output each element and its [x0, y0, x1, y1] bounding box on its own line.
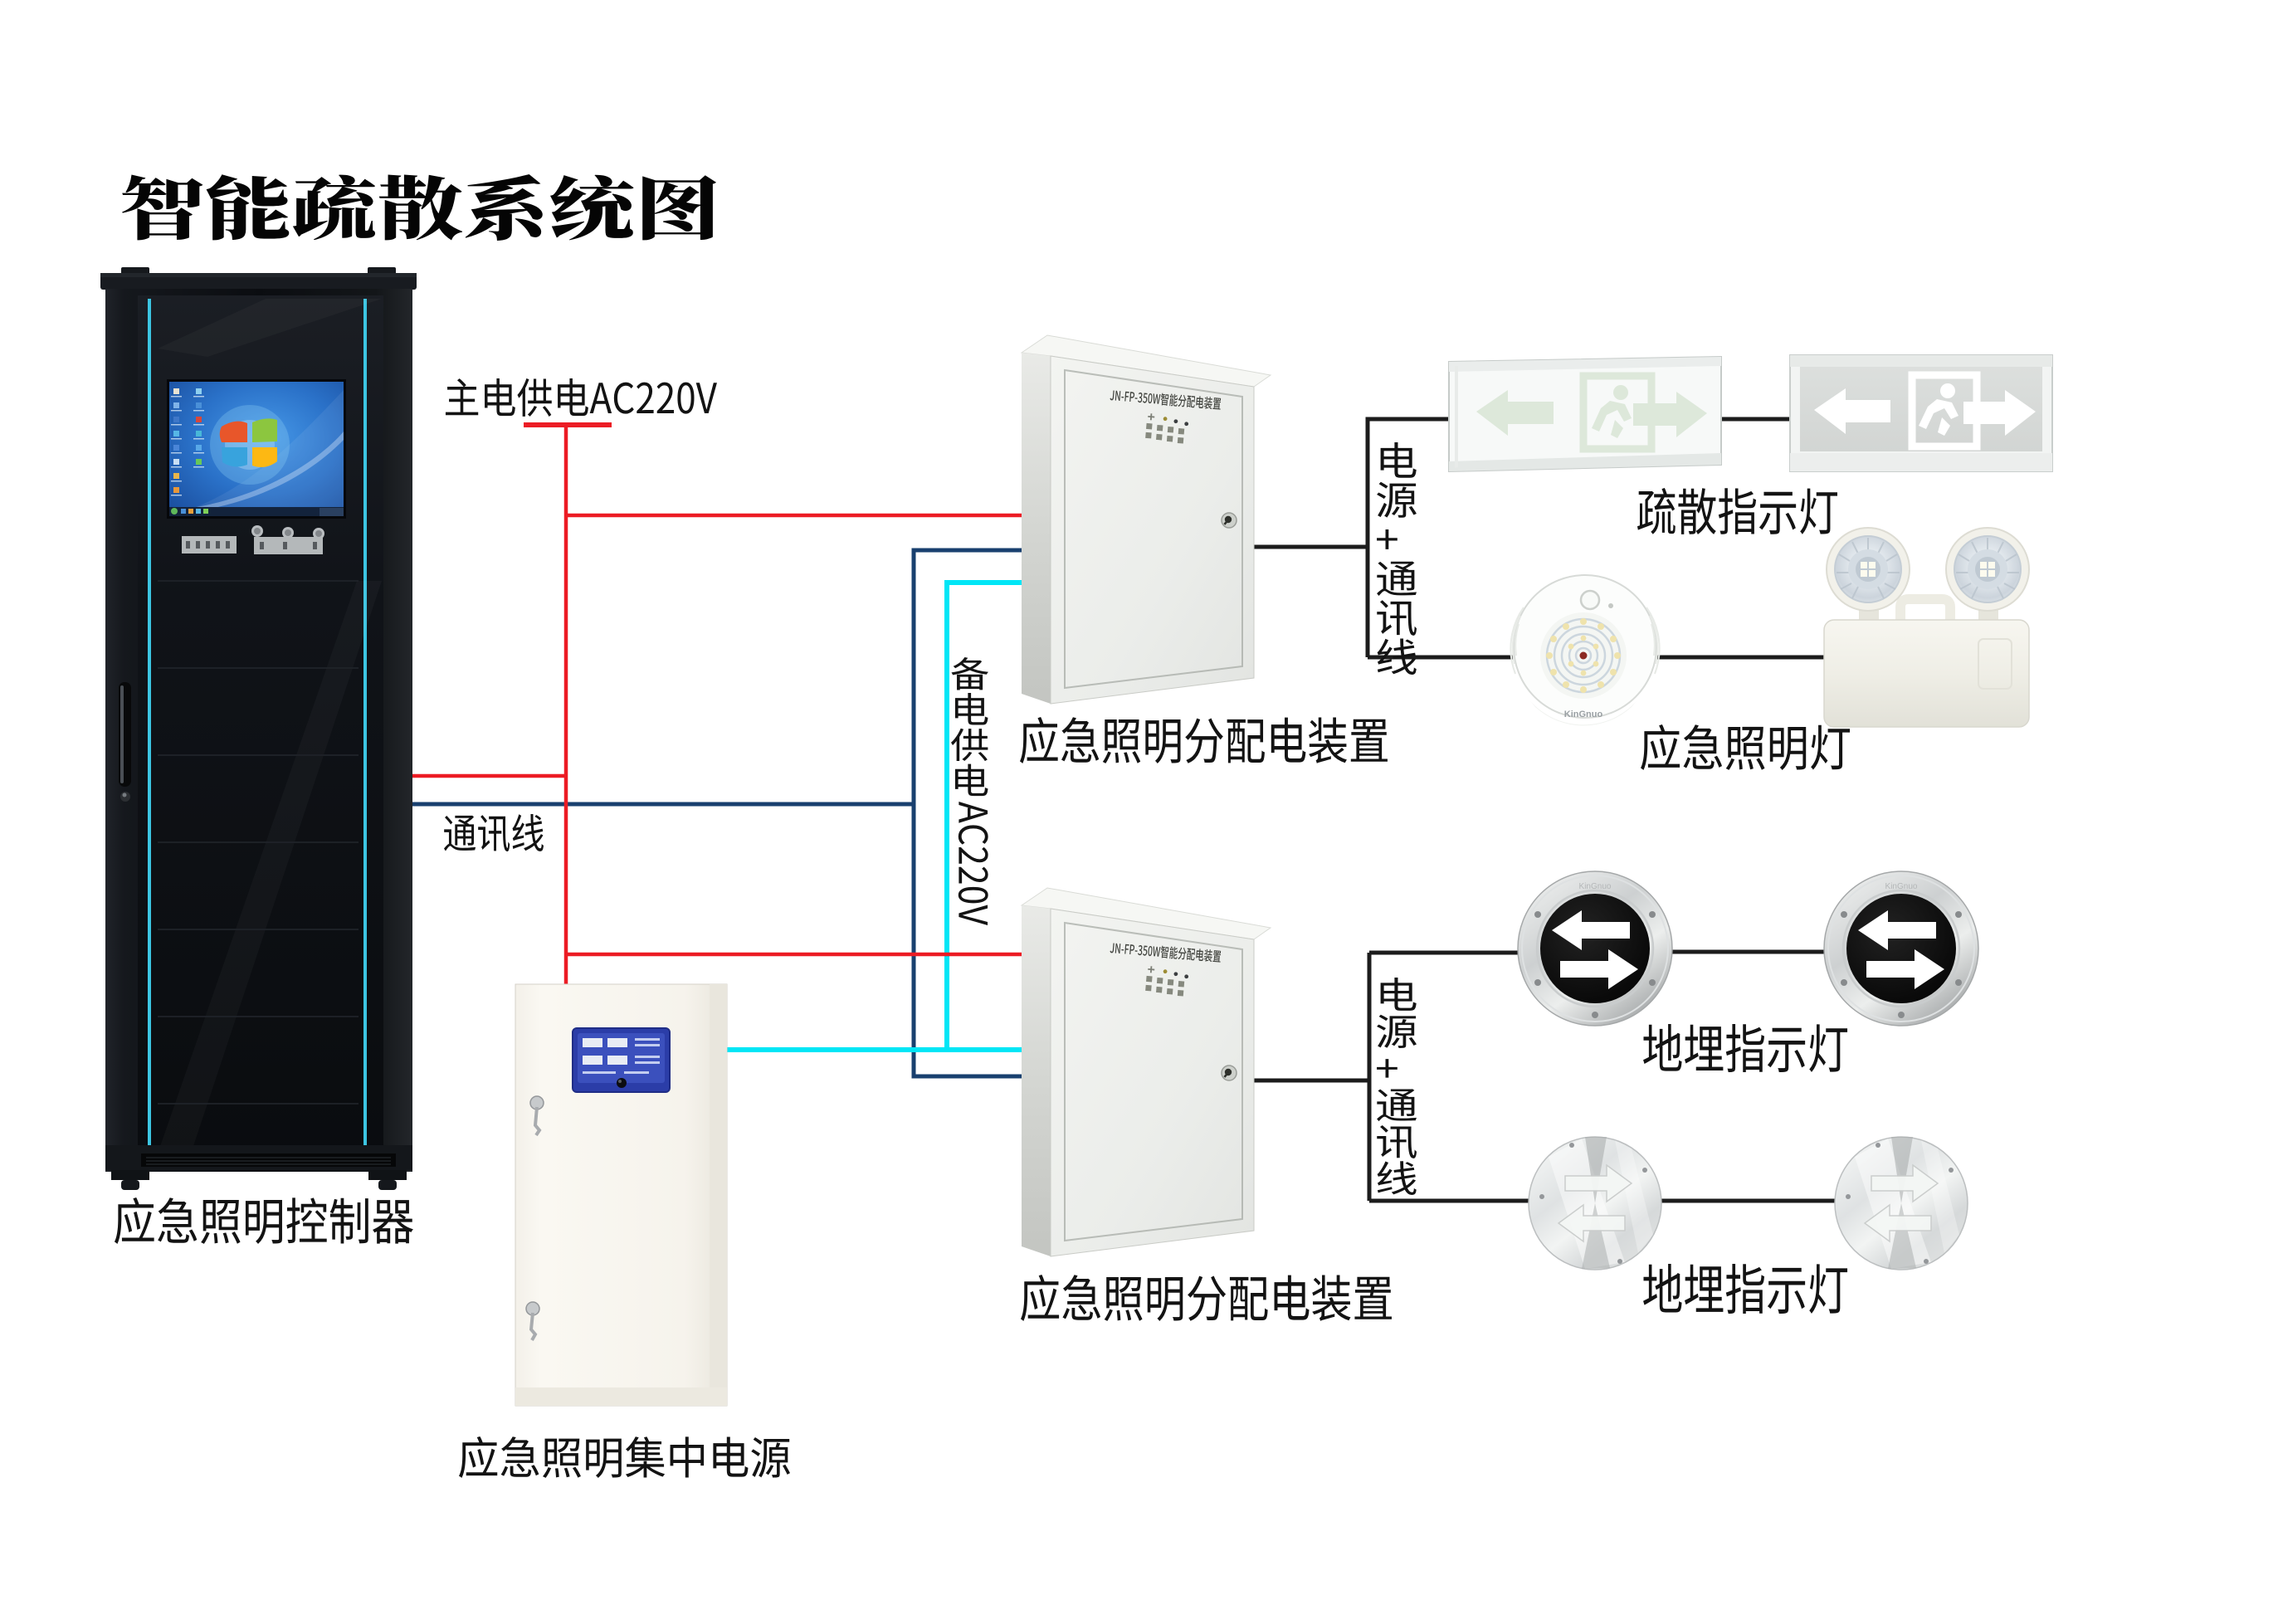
svg-text:KinGnuo: KinGnuo — [1564, 710, 1603, 719]
svg-text:KinGnuo: KinGnuo — [1579, 882, 1612, 891]
svg-text:KinGnuo: KinGnuo — [1885, 882, 1918, 891]
